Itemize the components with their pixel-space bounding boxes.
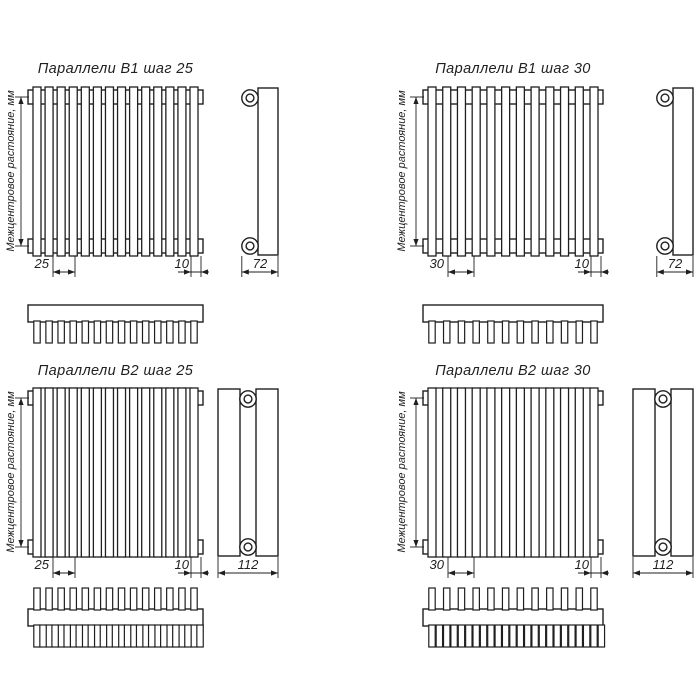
top-view — [28, 305, 203, 343]
front-view — [28, 388, 203, 557]
side-view — [218, 389, 278, 556]
technical-drawing-canvas — [0, 0, 700, 700]
dim-step-value: 30 — [416, 256, 444, 271]
dim-depth-value: 72 — [240, 256, 280, 271]
side-view — [657, 88, 693, 255]
dim-step-value: 30 — [416, 557, 444, 572]
top-view — [28, 588, 203, 647]
dim-tube-width-value: 10 — [163, 256, 189, 271]
panel-drawing-b1-step-25 — [15, 87, 278, 343]
vertical-axis-label: Межцентровое растояние, мм — [395, 76, 409, 266]
dim-step-value: 25 — [21, 256, 49, 271]
panel-drawing-b2-step-25 — [15, 388, 278, 647]
front-view — [423, 388, 603, 557]
dim-tube-width-value: 10 — [163, 557, 189, 572]
side-view — [242, 88, 278, 255]
panel-title-b2-step-25: Параллели В2 шаг 25 — [28, 362, 203, 380]
dim-depth-value: 112 — [228, 557, 268, 572]
vertical-axis-label: Межцентровое растояние, мм — [4, 377, 18, 567]
panel-title-b1-step-25: Параллели В1 шаг 25 — [28, 60, 203, 78]
dim-depth-value: 112 — [643, 557, 683, 572]
panel-title-b2-step-30: Параллели В2 шаг 30 — [423, 362, 603, 380]
side-view — [633, 389, 693, 556]
panel-drawing-b2-step-30 — [410, 388, 693, 647]
panel-title-b1-step-30: Параллели В1 шаг 30 — [423, 60, 603, 78]
top-view — [423, 588, 605, 647]
dim-tube-width-value: 10 — [563, 256, 589, 271]
drawing-sheet: Параллели В1 шаг 25 Параллели В1 шаг 30 … — [0, 0, 700, 700]
front-view — [28, 87, 203, 256]
front-view — [423, 87, 603, 256]
vertical-axis-label: Межцентровое растояние, мм — [395, 377, 409, 567]
dim-tube-width-value: 10 — [563, 557, 589, 572]
vertical-axis-label: Межцентровое растояние, мм — [4, 76, 18, 266]
top-view — [423, 305, 603, 343]
dim-depth-value: 72 — [655, 256, 695, 271]
dim-step-value: 25 — [21, 557, 49, 572]
panel-drawing-b1-step-30 — [410, 87, 693, 343]
